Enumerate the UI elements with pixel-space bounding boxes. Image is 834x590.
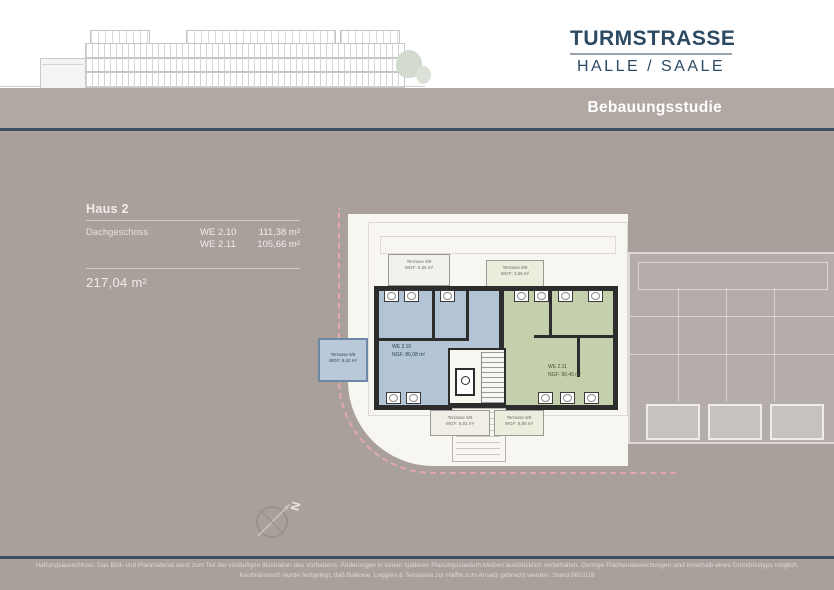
brand-title: TURMSTRASSE bbox=[570, 27, 732, 51]
disclaimer-line-1: Haftungsausschluss: Das Bild- und Planma… bbox=[0, 561, 834, 571]
neighbor-line bbox=[726, 288, 727, 402]
elevation-attic-block bbox=[186, 30, 336, 44]
neighbor-balcony bbox=[770, 404, 824, 440]
unit-area: 111,38 m² bbox=[246, 227, 300, 239]
unit-id: WE 2.11 bbox=[200, 239, 246, 251]
dormer-window-icon bbox=[440, 290, 455, 302]
interior-wall bbox=[432, 291, 435, 339]
divider bbox=[86, 220, 300, 221]
unit-row: WE 2.11 105,66 m² bbox=[86, 239, 300, 251]
header-bar: Bebauungsstudie bbox=[0, 88, 834, 131]
dormer-window-icon bbox=[560, 392, 575, 404]
info-panel: Haus 2 Dachgeschoss WE 2.10 111,38 m² WE… bbox=[86, 202, 300, 290]
dormer-window-icon bbox=[386, 392, 401, 404]
terrace-area: WGF: 5,36 m² bbox=[389, 265, 449, 271]
terrace-box: Terrasse 9/9 WGF: 6,81 m² bbox=[430, 410, 490, 436]
neighbor-line bbox=[630, 354, 834, 355]
elevation-floor-band bbox=[85, 71, 405, 88]
terrace-box: Terrasse 9/9 WGF: 3,85 m² bbox=[486, 260, 544, 288]
interior-wall bbox=[549, 291, 552, 337]
apartment-we-2-11 bbox=[503, 291, 613, 405]
dormer-window-icon bbox=[404, 290, 419, 302]
terrace-box: Terrasse 9/9 WGF: 5,36 m² bbox=[388, 254, 450, 286]
brand-divider bbox=[570, 53, 732, 55]
interior-wall bbox=[466, 291, 469, 339]
elevation-annex bbox=[40, 58, 87, 88]
apartment-label: WE 2.11 NGF: 90,46 m² bbox=[548, 364, 581, 379]
dormer-window-icon bbox=[406, 392, 421, 404]
spacer bbox=[86, 239, 200, 251]
footer-divider bbox=[0, 556, 834, 559]
neighbor-balcony bbox=[708, 404, 762, 440]
neighbor-building-plan bbox=[628, 252, 834, 444]
lower-floor-outline bbox=[380, 236, 616, 254]
terrace-area: WGF: 6,81 m² bbox=[431, 421, 489, 427]
apartment-id: WE 2.10 bbox=[392, 344, 425, 352]
stair-hatch bbox=[481, 352, 504, 403]
disclaimer: Haftungsausschluss: Das Bild- und Planma… bbox=[0, 561, 834, 582]
terrace-area: WGF: 9,42 m² bbox=[320, 358, 366, 364]
apartment-ngf: NGF: 86,08 m² bbox=[392, 352, 425, 360]
dormer-window-icon bbox=[584, 392, 599, 404]
dormer-window-icon bbox=[558, 290, 573, 302]
brand-block: TURMSTRASSE HALLE / SAALE bbox=[570, 27, 732, 76]
divider bbox=[86, 268, 300, 269]
floor-label: Dachgeschoss bbox=[86, 227, 200, 239]
elevator-icon bbox=[455, 368, 475, 396]
neighbor-line bbox=[774, 288, 775, 402]
disclaimer-line-2: Kaufmännisch wurde festgelegt, daß Balko… bbox=[0, 571, 834, 581]
terrace-area: WGF: 8,85 m² bbox=[495, 421, 543, 427]
house-title: Haus 2 bbox=[86, 202, 300, 216]
apartment-ngf: NGF: 90,46 m² bbox=[548, 372, 581, 380]
brand-subtitle: HALLE / SAALE bbox=[570, 58, 732, 76]
unit-row: Dachgeschoss WE 2.10 111,38 m² bbox=[86, 227, 300, 239]
neighbor-line bbox=[678, 288, 679, 402]
neighbor-balcony bbox=[646, 404, 700, 440]
dormer-window-icon bbox=[538, 392, 553, 404]
total-area: 217,04 m² bbox=[86, 275, 300, 290]
elevation-attic-block bbox=[340, 30, 400, 44]
terrace-box: Terrasse 9/9 WGF: 9,42 m² bbox=[318, 338, 368, 382]
compass-icon: N bbox=[246, 492, 316, 548]
compass-north-label: N bbox=[288, 500, 304, 512]
terrace-area: WGF: 3,85 m² bbox=[487, 271, 543, 277]
apartment-id: WE 2.11 bbox=[548, 364, 581, 372]
interior-wall bbox=[534, 335, 613, 338]
apartment-label: WE 2.10 NGF: 86,08 m² bbox=[392, 344, 425, 359]
elevation-attic-block bbox=[90, 30, 150, 44]
neighbor-roof-strip bbox=[638, 262, 828, 290]
interior-wall bbox=[379, 338, 469, 341]
unit-area: 105,66 m² bbox=[246, 239, 300, 251]
dormer-window-icon bbox=[514, 290, 529, 302]
tree-icon bbox=[416, 66, 431, 84]
dormer-window-icon bbox=[534, 290, 549, 302]
elevation-annex-line bbox=[42, 64, 83, 65]
terrace-box: Terrasse 9/9 WGF: 8,85 m² bbox=[494, 410, 544, 436]
unit-id: WE 2.10 bbox=[200, 227, 246, 239]
dormer-window-icon bbox=[588, 290, 603, 302]
top-band: TURMSTRASSE HALLE / SAALE bbox=[0, 0, 834, 88]
dormer-window-icon bbox=[384, 290, 399, 302]
page-title: Bebauungsstudie bbox=[587, 99, 722, 117]
neighbor-line bbox=[630, 316, 834, 317]
